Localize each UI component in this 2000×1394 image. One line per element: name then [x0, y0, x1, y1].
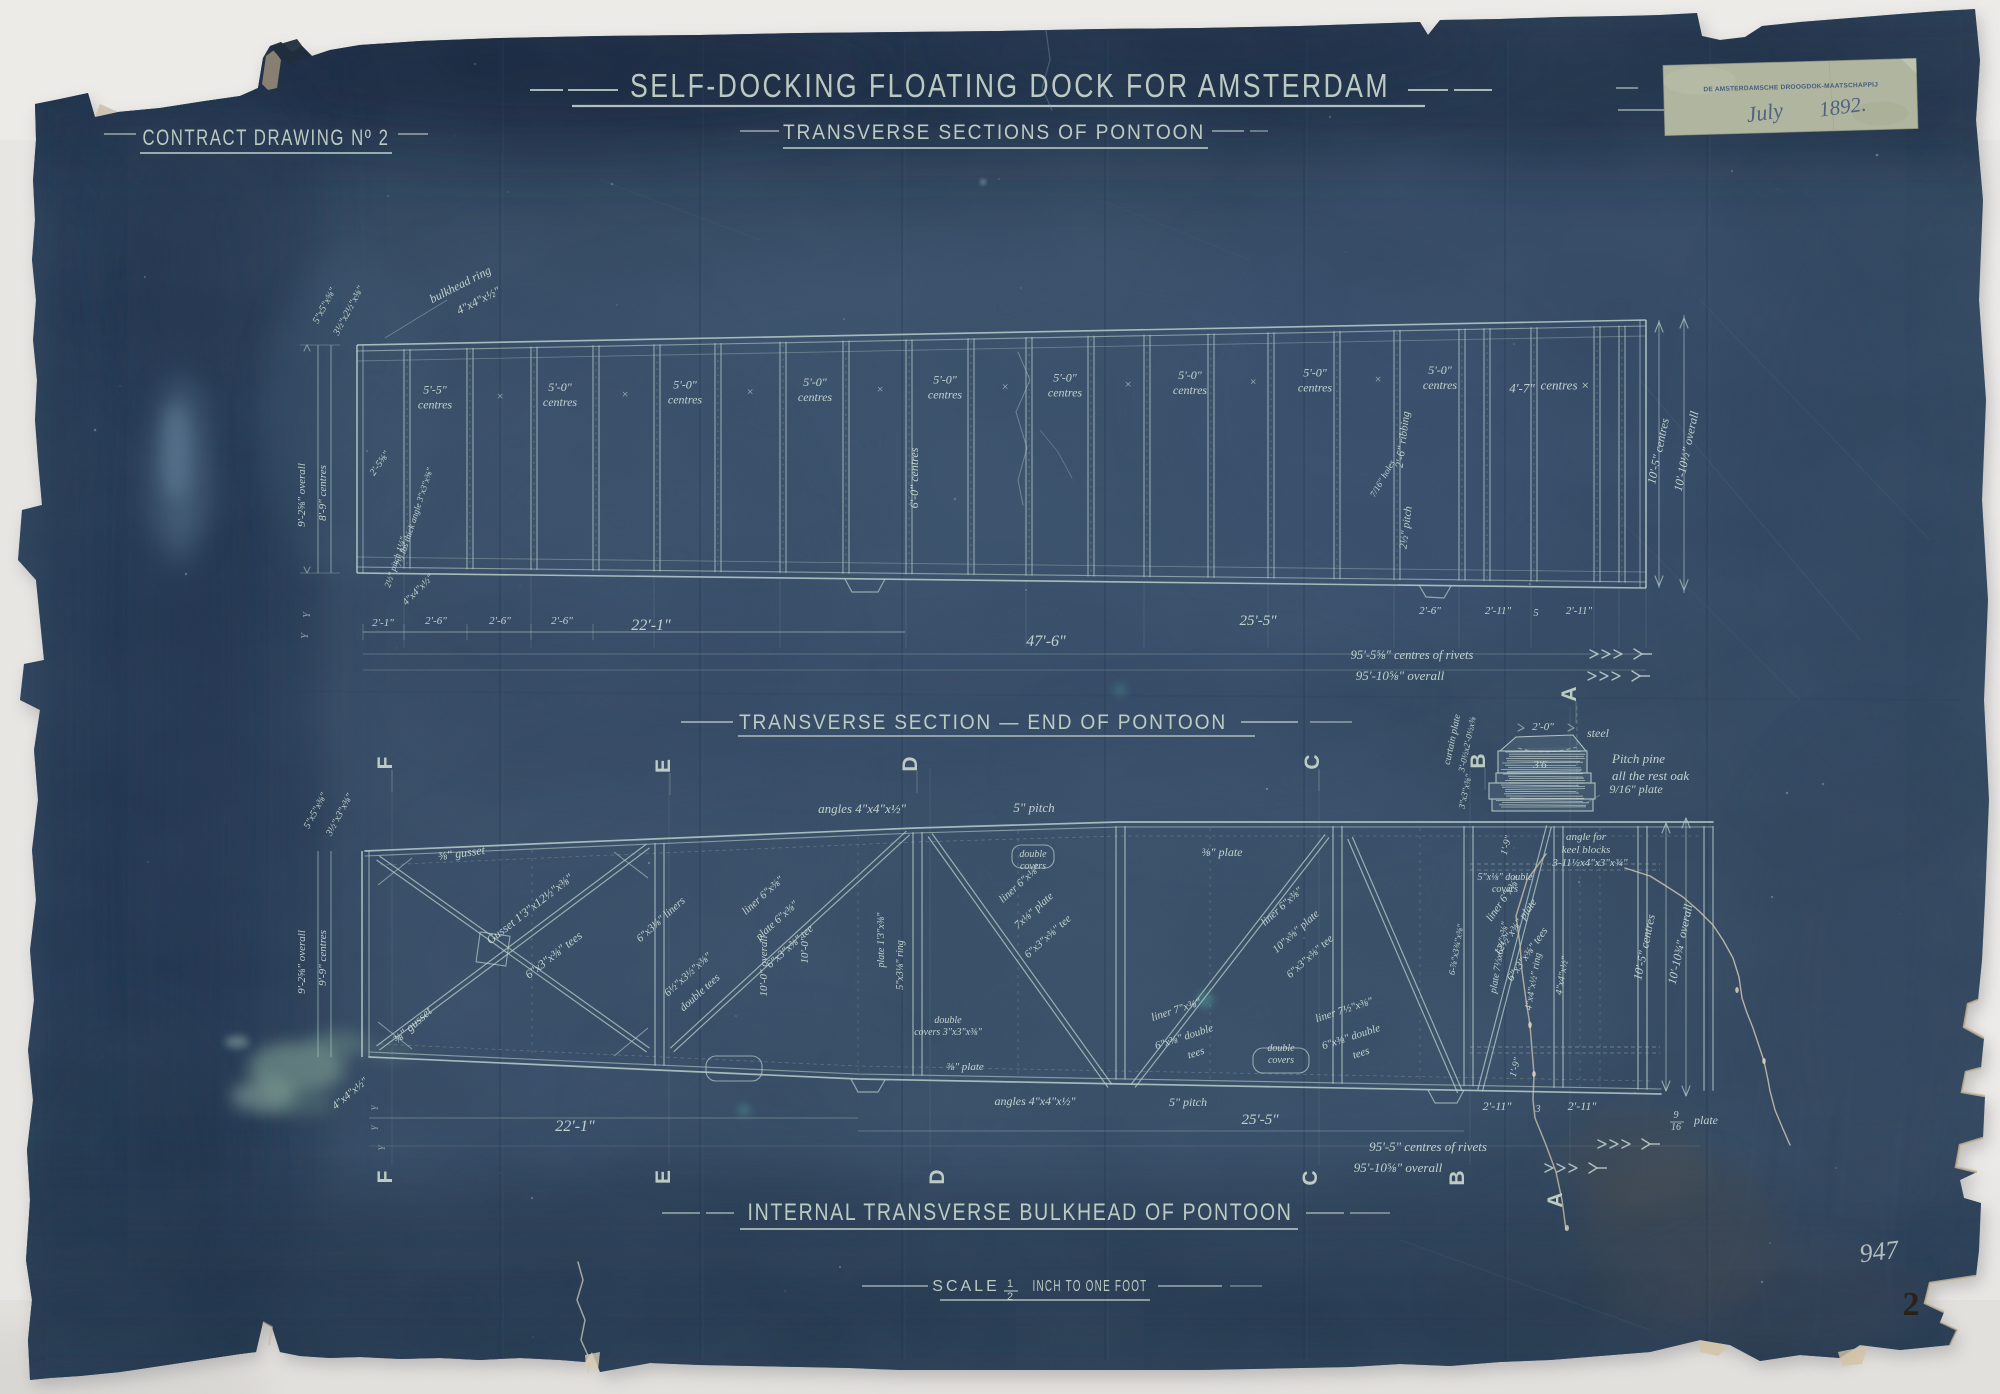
svg-text:Pitch pine: Pitch pine [1611, 751, 1665, 766]
svg-text:angle for: angle for [1566, 831, 1607, 843]
svg-text:5'-0": 5'-0" [803, 375, 828, 389]
svg-text:947: 947 [1858, 1235, 1901, 1269]
svg-text:TRANSVERSE SECTIONS OF PONTOON: TRANSVERSE SECTIONS OF PONTOON [783, 121, 1205, 144]
svg-text:2'-6": 2'-6" [551, 615, 573, 627]
svg-text:2'-6": 2'-6" [1419, 605, 1441, 617]
svg-text:centres ×: centres × [1540, 378, 1589, 393]
svg-text:9'-9" centres: 9'-9" centres [317, 930, 329, 986]
svg-text:6'-0" centres: 6'-0" centres [907, 447, 921, 508]
svg-text:F: F [374, 1169, 397, 1184]
svg-text:5'-0": 5'-0" [673, 378, 698, 392]
svg-text:2'-11": 2'-11" [1566, 605, 1593, 617]
svg-text:2'-6": 2'-6" [489, 615, 511, 627]
svg-text:3: 3 [1535, 1104, 1541, 1115]
svg-text:9'-2⅝" overall: 9'-2⅝" overall [296, 463, 308, 527]
svg-text:centres: centres [1173, 383, 1208, 397]
svg-text:A: A [1544, 1190, 1567, 1207]
svg-text:5" pitch: 5" pitch [1013, 800, 1054, 815]
svg-text:5'-0": 5'-0" [548, 380, 573, 394]
svg-text:angles 4"x4"x½": angles 4"x4"x½" [994, 1094, 1076, 1108]
svg-text:F: F [374, 755, 397, 770]
svg-text:double: double [1019, 849, 1047, 860]
svg-text:double: double [934, 1015, 962, 1026]
svg-text:SCALE: SCALE [932, 1278, 999, 1295]
svg-text:centres: centres [668, 393, 703, 407]
svg-text:2'-11": 2'-11" [1568, 1099, 1598, 1113]
svg-text:SELF-DOCKING FLOATING DOCK FOR: SELF-DOCKING FLOATING DOCK FOR AMSTERDAM [630, 67, 1390, 104]
svg-text:E: E [652, 757, 675, 773]
svg-text:all the rest oak: all the rest oak [1612, 768, 1689, 783]
svg-text:9: 9 [1674, 1110, 1679, 1121]
svg-text:C: C [1299, 1168, 1322, 1185]
svg-text:5" pitch: 5" pitch [1169, 1095, 1207, 1109]
svg-text:2'-11": 2'-11" [1485, 605, 1512, 617]
svg-text:2'-0": 2'-0" [1532, 721, 1554, 733]
svg-text:5'-0": 5'-0" [1428, 363, 1453, 377]
svg-text:D: D [926, 1167, 949, 1184]
svg-text:TRANSVERSE SECTION — END OF PO: TRANSVERSE SECTION — END OF PONTOON [739, 711, 1227, 734]
svg-text:1: 1 [1007, 1278, 1015, 1290]
svg-text:⅜" plate: ⅜" plate [946, 1061, 984, 1073]
svg-text:D: D [899, 754, 922, 771]
svg-text:C: C [1301, 752, 1324, 769]
svg-text:2'-6": 2'-6" [425, 615, 447, 627]
svg-text:covers: covers [1492, 884, 1518, 895]
svg-text:centres: centres [543, 395, 578, 409]
svg-text:centres: centres [1298, 380, 1333, 394]
svg-text:10'-0" overall: 10'-0" overall [758, 935, 770, 996]
svg-text:plate 1'3"x⅜": plate 1'3"x⅜" [876, 912, 887, 969]
svg-text:3'6: 3'6 [1532, 759, 1547, 771]
svg-text:5'-0": 5'-0" [1178, 368, 1203, 382]
svg-text:8'-9" centres: 8'-9" centres [317, 465, 329, 521]
svg-text:INTERNAL TRANSVERSE BULKHEAD O: INTERNAL TRANSVERSE BULKHEAD OF PONTOON [748, 1199, 1293, 1226]
svg-text:×: × [496, 389, 504, 403]
svg-text:angles 4"x4"x½": angles 4"x4"x½" [818, 801, 906, 816]
svg-text:95'-10⅝" overall: 95'-10⅝" overall [1354, 1160, 1443, 1175]
svg-text:keel blocks: keel blocks [1562, 844, 1611, 856]
svg-text:5'-0": 5'-0" [933, 373, 958, 387]
svg-text:47'-6": 47'-6" [1026, 633, 1066, 650]
svg-text:plate: plate [1693, 1113, 1719, 1127]
svg-text:⅜" plate: ⅜" plate [1201, 845, 1243, 859]
svg-text:95'-10⅝" overall: 95'-10⅝" overall [1356, 668, 1445, 683]
svg-text:A: A [1558, 684, 1581, 701]
svg-text:5"x⅛" double: 5"x⅛" double [1477, 872, 1533, 883]
svg-text:22'-1": 22'-1" [555, 1118, 595, 1135]
svg-text:CONTRACT DRAWING Nº 2: CONTRACT DRAWING Nº 2 [143, 125, 390, 150]
svg-text:2: 2 [1903, 1286, 1920, 1323]
svg-text:E: E [652, 1168, 675, 1184]
svg-text:double: double [1267, 1043, 1295, 1054]
svg-text:centres: centres [1423, 378, 1458, 392]
svg-text:3-11½x4"x3"x¾": 3-11½x4"x3"x¾" [1551, 857, 1628, 869]
svg-text:10'-0": 10'-0" [799, 936, 811, 964]
svg-text:2: 2 [1007, 1291, 1015, 1303]
svg-text:25'-5": 25'-5" [1239, 613, 1277, 629]
svg-text:9/16" plate: 9/16" plate [1609, 782, 1663, 796]
svg-text:5'-0": 5'-0" [1053, 370, 1078, 384]
svg-text:centres: centres [928, 388, 963, 402]
svg-text:INCH TO ONE FOOT: INCH TO ONE FOOT [1033, 1278, 1148, 1295]
svg-text:covers: covers [1268, 1055, 1294, 1066]
svg-text:95'-5⅝" centres of rivets: 95'-5⅝" centres of rivets [1351, 648, 1474, 662]
svg-text:centres: centres [418, 398, 453, 412]
svg-text:×: × [1249, 375, 1257, 389]
svg-text:9'-2⅝" overall: 9'-2⅝" overall [296, 930, 308, 994]
svg-text:2'-1": 2'-1" [372, 617, 394, 629]
svg-text:×: × [1001, 379, 1009, 393]
svg-text:×: × [1124, 377, 1132, 391]
svg-text:4'-7": 4'-7" [1509, 380, 1535, 395]
svg-text:5'-5": 5'-5" [423, 383, 448, 397]
svg-text:×: × [746, 384, 754, 398]
svg-text:B: B [1446, 1168, 1469, 1185]
svg-text:25'-5": 25'-5" [1241, 1112, 1279, 1128]
svg-text:centres: centres [1048, 385, 1083, 399]
svg-text:16: 16 [1671, 1122, 1681, 1133]
svg-text:B: B [1467, 751, 1490, 768]
svg-text:×: × [621, 387, 629, 401]
svg-text:×: × [876, 382, 884, 396]
svg-text:2'-11": 2'-11" [1483, 1099, 1513, 1113]
svg-text:5: 5 [1534, 608, 1539, 619]
svg-text:×: × [1374, 372, 1382, 386]
svg-text:covers 3"x3"x⅜": covers 3"x3"x⅜" [914, 1027, 982, 1038]
svg-text:5"x3⅛" ring: 5"x3⅛" ring [895, 940, 906, 990]
svg-text:22'-1": 22'-1" [631, 617, 671, 634]
svg-text:July: July [1745, 97, 1785, 127]
svg-text:95'-5" centres of rivets: 95'-5" centres of rivets [1369, 1139, 1487, 1154]
svg-text:steel: steel [1587, 726, 1610, 740]
svg-text:centres: centres [798, 390, 833, 404]
svg-text:5'-0": 5'-0" [1303, 365, 1328, 379]
